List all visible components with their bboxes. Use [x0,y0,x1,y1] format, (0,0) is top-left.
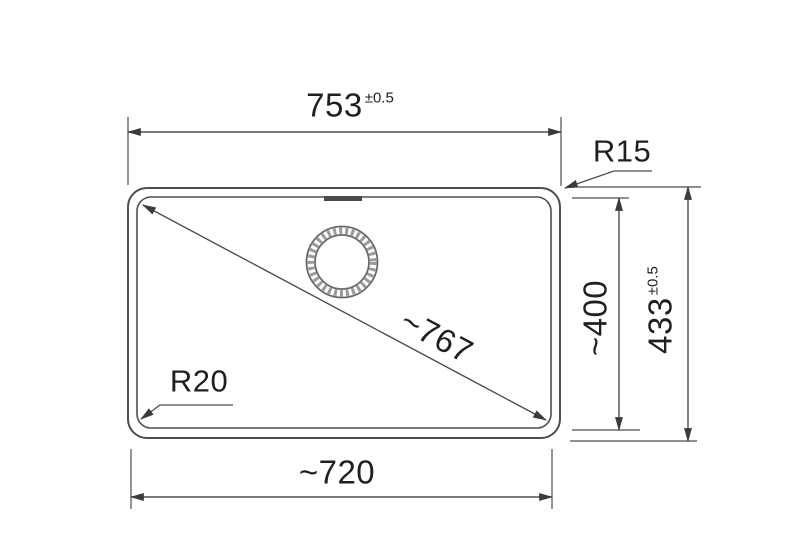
top-width-tolerance: ±0.5 [365,91,394,106]
top-width-dimension [128,117,561,186]
outer-height-label: 433 ±0.5 [644,266,677,354]
drain-hatch-ring [311,231,373,293]
drawing-geometry [0,0,800,544]
corner-radius-top-right-label: R15 [593,136,651,167]
overflow-slot [324,196,362,201]
top-width-label: 753 ±0.5 [306,89,394,122]
bottom-width-value: ~720 [299,456,375,489]
bottom-width-label: ~720 [299,456,375,489]
inner-height-label: ~400 [579,280,612,356]
corner-radius-bottom-left-label: R20 [170,366,228,397]
inner-height-value: ~400 [579,280,612,356]
outer-height-value: 433 [644,297,677,354]
technical-drawing-canvas: 753 ±0.5 R15 ~400 433 ±0.5 ~767 R20 ~720 [0,0,800,544]
top-width-value: 753 [306,89,363,122]
drain-hole [307,227,378,298]
r20-leader-line [141,405,233,419]
r15-leader-line [565,171,652,188]
outer-height-tolerance: ±0.5 [646,266,661,295]
